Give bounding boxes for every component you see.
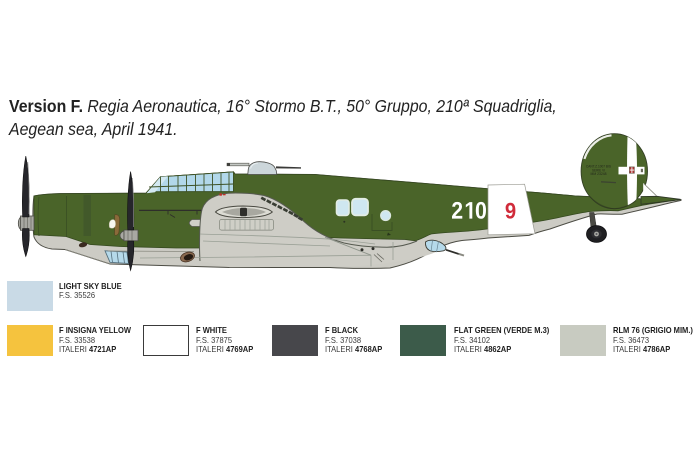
svg-text:MM 23248: MM 23248 [591, 172, 607, 176]
